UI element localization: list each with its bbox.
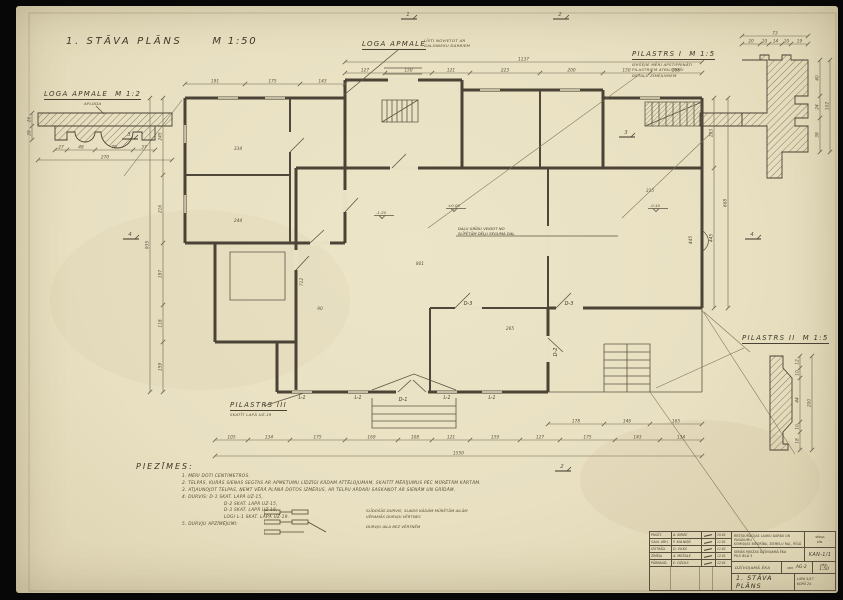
dim-label: 10 bbox=[784, 38, 790, 44]
date-cell: 11.81 bbox=[716, 547, 731, 551]
door-symbol-legend: SLĪDOŠĀS DURVIS, SLAIDS KĀDĀM MŪRĒTĀM AI… bbox=[264, 508, 468, 538]
loga-apmale-top-note: LĪSTI NOVIETOT AR GALDNIEKU DARBIEM bbox=[424, 38, 470, 49]
loga-apmale-subnote: APLODA bbox=[84, 101, 101, 106]
dim-label: 159 bbox=[491, 434, 499, 440]
organization-text: RESTAURĀCIJAS LAUKU DARBU UN PASĀKUMU KO… bbox=[732, 532, 804, 547]
dim-label: 1550 bbox=[453, 450, 464, 456]
level-mark-label: ±0.00 bbox=[448, 203, 460, 208]
note-item: 1. MĒRI DOTI CENTIMETROS. bbox=[182, 474, 606, 481]
dim-label: 134 bbox=[677, 434, 685, 440]
object-text: SENĀS MUIŽAS DZĪVOJAMĀ ĒKA PILS IELĀ 3 bbox=[732, 548, 804, 561]
dim-label: 191 bbox=[211, 78, 219, 84]
dim-label: 165 bbox=[672, 418, 680, 424]
legend-line: SLĪDOŠĀS DURVIS, SLAIDS KĀDĀM MŪRĒTĀM AI… bbox=[366, 508, 468, 514]
section-marker-label: 4 bbox=[750, 232, 754, 238]
door-label-d1: D-1 bbox=[399, 397, 408, 403]
sheet-title-text: 1. STĀVA PLĀNS bbox=[66, 36, 182, 47]
dim-line bbox=[631, 133, 635, 137]
level-mark-label: -1.20 bbox=[376, 210, 387, 215]
dim-label: 121 bbox=[447, 67, 455, 73]
organization-row: RESTAURĀCIJAS LAUKU DARBU UN PASĀKUMU KO… bbox=[732, 532, 835, 548]
dim-label: 127 bbox=[361, 67, 369, 73]
dim-label: 105 bbox=[227, 434, 235, 440]
org-line: KOMISIJAS BIEDRĪBA, ZIEMEĻU RAJ., RĪGĀ bbox=[734, 542, 802, 546]
dim-label: 270 bbox=[101, 154, 109, 160]
section-marker-label: 1 bbox=[406, 12, 409, 18]
notes-block: PIEZĪMES: 1. MĒRI DOTI CENTIMETROS. 2. T… bbox=[136, 462, 606, 529]
signature-mark bbox=[704, 555, 712, 558]
signature-mark bbox=[704, 562, 712, 565]
floor-note-line2: SLĪPĒTĀM DĒĻU SEGUMA DAĻ. bbox=[458, 231, 516, 236]
dim-label: 10 bbox=[762, 38, 768, 44]
dim-label: 216 bbox=[157, 205, 163, 213]
signature-row: PASŪT. A. BIRZE 10.81 bbox=[650, 532, 731, 539]
signature-cell bbox=[702, 539, 716, 545]
signature-cell bbox=[702, 532, 716, 538]
dim-line bbox=[757, 235, 761, 239]
door-label-d2: D-2 bbox=[553, 348, 559, 357]
dim-label: 48 bbox=[78, 144, 84, 150]
dim-label: 223 bbox=[501, 67, 509, 73]
scale-value: 1:50 bbox=[819, 567, 829, 572]
loga-apmale-profile-drawing bbox=[38, 113, 172, 148]
dim-label: 143 bbox=[633, 434, 641, 440]
signature-cell bbox=[702, 546, 716, 552]
dim-label: 935 bbox=[144, 241, 150, 249]
dim-label: 175 bbox=[583, 434, 591, 440]
dim-label: 108 bbox=[411, 434, 419, 440]
empty-grid-cell bbox=[650, 567, 731, 590]
dim-label: 37 bbox=[141, 144, 147, 150]
org-line: RESTAURĀCIJAS LAUKU DARBU UN PASĀKUMU bbox=[734, 534, 802, 542]
detail-title-pilastrs-1: PILASTRS IM 1:5 bbox=[632, 50, 715, 60]
section-marker-label: 4 bbox=[128, 232, 132, 238]
dim-line bbox=[565, 15, 569, 19]
dim-label: 73 bbox=[772, 30, 778, 36]
stage-cell: IZM. AG-2 bbox=[781, 562, 812, 573]
signature-mark bbox=[704, 541, 712, 544]
detail-title-pilastrs-2: PILASTRS IIM 1:5 bbox=[742, 334, 829, 344]
dim-label: 40 bbox=[814, 75, 820, 81]
dim-label: 24 bbox=[814, 104, 820, 110]
section-marker-label: 3 bbox=[127, 132, 131, 138]
signature-cell bbox=[702, 553, 716, 559]
dim-label: 159 bbox=[157, 363, 163, 371]
window-label-l1: L-1 bbox=[298, 395, 305, 401]
dim-label: 668 bbox=[722, 199, 728, 207]
name-cell: E. OZOLS bbox=[672, 560, 702, 566]
inner-dim-label: 445 bbox=[688, 236, 694, 244]
object-row: SENĀS MUIŽAS DZĪVOJAMĀ ĒKA PILS IELĀ 3 K… bbox=[732, 548, 835, 562]
building-row: DZĪVOJAMĀ ĒKA IZM. AG-2 MĒR. 1:50 bbox=[732, 562, 835, 574]
dim-label: 134 bbox=[265, 434, 273, 440]
object-line: PILS IELĀ 3 bbox=[734, 554, 802, 558]
legend-line: DURVJU AILA BEZ VĒRTNĒM bbox=[366, 524, 468, 530]
dim-label: 1137 bbox=[518, 56, 529, 62]
dim-label: 102 bbox=[824, 102, 830, 110]
role-cell: GALV. ARH. bbox=[650, 539, 672, 545]
pilastrs-2-section-drawing bbox=[770, 356, 792, 450]
pilastrs-1-section-drawing bbox=[700, 55, 808, 178]
dim-line bbox=[134, 135, 138, 139]
role-cell: PĀRBAUD. bbox=[650, 560, 672, 566]
role-cell: PASŪT. bbox=[650, 532, 672, 538]
notes-heading: PIEZĪMES: bbox=[136, 462, 606, 471]
stage-label: IZM. bbox=[787, 566, 793, 570]
detail-title-text: LOGA APMALE bbox=[362, 40, 426, 48]
dim-label: 197 bbox=[157, 270, 163, 278]
dim-label: 175 bbox=[268, 78, 276, 84]
name-cell: A. MEŽALE bbox=[672, 553, 702, 559]
title-block: PASŪT. A. BIRZE 10.81 GALV. ARH. P. KALN… bbox=[649, 531, 836, 591]
level-mark-label: -0.45 bbox=[650, 203, 661, 208]
drawing-title: 1. STĀVA PLĀNS bbox=[732, 574, 794, 590]
detail-scale: M 1:5 bbox=[689, 50, 715, 58]
detail-title-pilastrs-3: PILASTRS III bbox=[230, 401, 287, 411]
dim-label: 118 bbox=[157, 319, 163, 327]
inner-dim-label: 712 bbox=[299, 278, 305, 286]
note-line: DETAĻU ZĪMĒJUMIEM bbox=[632, 73, 693, 78]
dim-label: 175 bbox=[313, 434, 321, 440]
window-label-l1: L-1 bbox=[354, 395, 361, 401]
date-cell: 11.81 bbox=[716, 540, 731, 544]
signature-cell bbox=[702, 560, 716, 566]
dim-label: 200 bbox=[806, 399, 812, 407]
title-block-signatures: PASŪT. A. BIRZE 10.81 GALV. ARH. P. KALN… bbox=[650, 532, 732, 590]
dim-label: 200 bbox=[567, 67, 575, 73]
detail-title-text: LOGA APMALE bbox=[44, 90, 108, 98]
sheet-title: 1. STĀVA PLĀNSM 1:50 bbox=[66, 36, 257, 47]
detail-title-loga-apmale-left: LOGA APMALEM 1:2 bbox=[44, 90, 141, 100]
sheet-number-cell: LAPA 5/17 KOPĀ 24 bbox=[794, 574, 835, 590]
signature-row: ZĪMĒJA A. MEŽALE 12.81 bbox=[650, 553, 731, 560]
series-cell: SĒRIJA ZĪM. bbox=[804, 532, 835, 547]
role-cell: IZSTRĀD. bbox=[650, 546, 672, 552]
dim-label: 445 bbox=[708, 234, 714, 242]
note-item: 2. TELPĀS, KURĀS SIENAS SEGTAS AR APMETU… bbox=[182, 481, 606, 488]
dim-label: 26 bbox=[26, 117, 32, 123]
dim-label: 70 bbox=[111, 144, 117, 150]
note-item: 4. DURVIS: D-1 SKAT. LAPĀ UZ-15, bbox=[182, 495, 606, 502]
note-item: 3. ATJAUNOJOT TELPAS, ŅEMT VĒRĀ PLĀNĀ DO… bbox=[182, 488, 606, 495]
series-sub-label: ZĪM. bbox=[817, 540, 823, 544]
name-cell: A. BIRZE bbox=[672, 532, 702, 538]
scale-cell: MĒR. 1:50 bbox=[812, 562, 835, 573]
section-marker-label: 3 bbox=[624, 130, 628, 136]
dim-label: 223 bbox=[708, 129, 714, 137]
inner-dim-label: 244 bbox=[234, 218, 242, 224]
date-cell: 12.81 bbox=[716, 561, 731, 565]
dim-label: 121 bbox=[447, 434, 455, 440]
detail-scale: M 1:2 bbox=[115, 90, 141, 98]
stair-hatch bbox=[645, 102, 702, 126]
dim-label: 245 bbox=[157, 132, 163, 140]
detail-title-text: PILASTRS I bbox=[632, 50, 682, 58]
dim-label: 38 bbox=[814, 132, 820, 138]
dim-label: 18 bbox=[794, 438, 800, 444]
dim-label: 28 bbox=[26, 130, 32, 136]
sheet-scale: M 1:50 bbox=[212, 36, 257, 47]
signature-mark bbox=[704, 534, 712, 537]
title-block-main: RESTAURĀCIJAS LAUKU DARBU UN PASĀKUMU KO… bbox=[732, 532, 835, 590]
dim-line bbox=[413, 15, 417, 19]
pilastrs-3-note: SKATĪT LAPĀ UZ-19 bbox=[230, 412, 272, 417]
signature-row: IZSTRĀD. D. VILKS 11.81 bbox=[650, 546, 731, 553]
signature-mark bbox=[704, 548, 712, 551]
inner-dim-label: 334 bbox=[234, 146, 242, 152]
dim-label: 27 bbox=[58, 144, 64, 150]
role-cell: ZĪMĒJA bbox=[650, 553, 672, 559]
dim-label: 143 bbox=[318, 78, 326, 84]
dim-label: 127 bbox=[536, 434, 544, 440]
door-symbol-diagrams bbox=[264, 508, 356, 538]
pilastrs-1-notes: IEKŠĒJIE MĒRI APSTIPRINĀTI PILASTRIEM AT… bbox=[632, 62, 693, 78]
detail-title-loga-apmale-top: LOGA APMALE bbox=[362, 40, 426, 50]
object-code: KAN-1/1 bbox=[804, 548, 835, 561]
section-marker-label: 2 bbox=[558, 12, 562, 18]
dim-label: 178 bbox=[572, 418, 580, 424]
detail-scale: M 1:5 bbox=[803, 334, 829, 342]
door-label-d3a: D-3 bbox=[464, 301, 473, 307]
window-label-l1: L-1 bbox=[443, 395, 450, 401]
signature-row: GALV. ARH. P. KALNIŅŠ 11.81 bbox=[650, 539, 731, 546]
date-cell: 12.81 bbox=[716, 554, 731, 558]
stage-value: AG-2 bbox=[796, 565, 807, 570]
inner-dim-label: 801 bbox=[416, 261, 424, 267]
blueprint-sheet: { "sheet": { "title": "1. STĀVA PLĀNS", … bbox=[0, 0, 843, 600]
window-label-l1: L-1 bbox=[488, 395, 495, 401]
sheet-total: KOPĀ 24 bbox=[797, 582, 835, 587]
dim-label: 14 bbox=[773, 38, 779, 44]
signature-row: PĀRBAUD. E. OZOLS 12.81 bbox=[650, 560, 731, 567]
drawing-title-row: 1. STĀVA PLĀNS LAPA 5/17 KOPĀ 24 bbox=[732, 574, 835, 590]
inner-dim-label: 90 bbox=[317, 306, 323, 312]
date-cell: 10.81 bbox=[716, 533, 731, 537]
dim-label: 10 bbox=[794, 424, 800, 430]
dim-label: 12 bbox=[794, 359, 800, 365]
note-line: GALDNIEKU DARBIEM bbox=[424, 43, 470, 48]
dim-label: 150 bbox=[622, 67, 630, 73]
dim-label: 150 bbox=[404, 67, 412, 73]
legend-line: VĒRAMĀS DURVJU VĒRTNES bbox=[366, 514, 468, 520]
inner-dim-label: 265 bbox=[506, 326, 514, 332]
legend-texts: SLĪDOŠĀS DURVIS, SLAIDS KĀDĀM MŪRĒTĀM AI… bbox=[366, 508, 468, 530]
dim-label: 146 bbox=[623, 418, 631, 424]
name-cell: P. KALNIŅŠ bbox=[672, 539, 702, 545]
dim-label: 44 bbox=[794, 397, 800, 403]
detail-title-text: PILASTRS III bbox=[230, 401, 287, 409]
dim-label: 10 bbox=[794, 370, 800, 376]
door-label-d3b: D-3 bbox=[565, 301, 574, 307]
building-label: DZĪVOJAMĀ ĒKA bbox=[732, 562, 781, 573]
detail-title-text: PILASTRS II bbox=[742, 334, 796, 342]
dim-label: 19 bbox=[797, 38, 803, 44]
inner-dim-label: 315 bbox=[646, 188, 654, 194]
dim-label: 20 bbox=[748, 38, 754, 44]
name-cell: D. VILKS bbox=[672, 546, 702, 552]
dim-label: 169 bbox=[367, 434, 375, 440]
